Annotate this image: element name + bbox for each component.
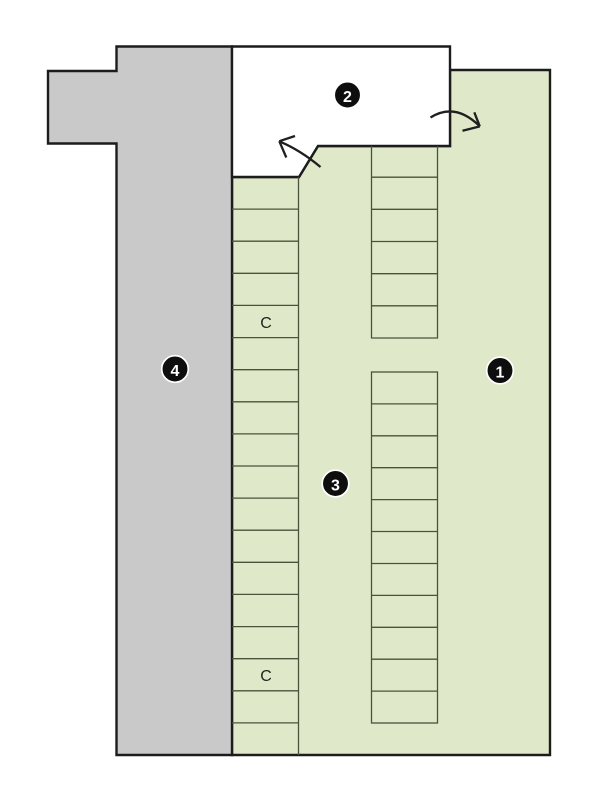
- svg-text:C: C: [260, 668, 272, 685]
- svg-text:4: 4: [171, 363, 180, 380]
- svg-text:3: 3: [331, 478, 340, 495]
- svg-text:2: 2: [343, 89, 352, 106]
- svg-text:1: 1: [496, 365, 505, 382]
- svg-text:C: C: [260, 315, 272, 332]
